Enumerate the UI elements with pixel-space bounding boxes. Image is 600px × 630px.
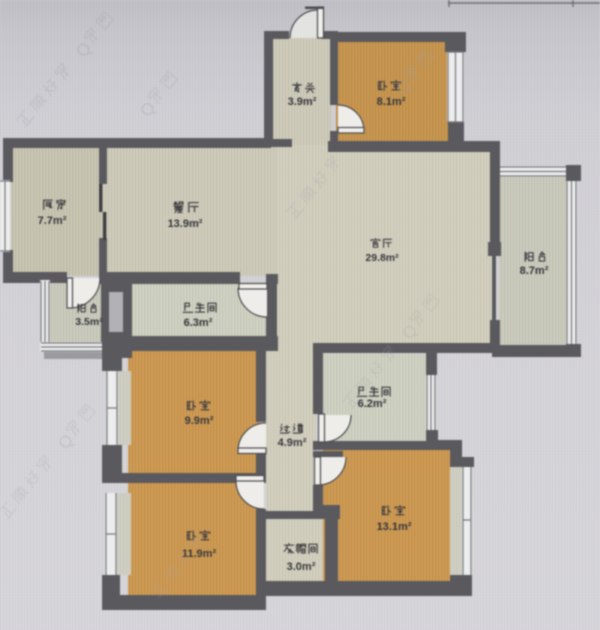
svg-text:29.8m²: 29.8m² xyxy=(365,252,399,264)
svg-text:9.9m²: 9.9m² xyxy=(185,415,214,427)
svg-text:6.3m²: 6.3m² xyxy=(184,317,213,329)
svg-text:13.1m²: 13.1m² xyxy=(377,521,412,533)
svg-text:13.9m²: 13.9m² xyxy=(168,218,203,230)
svg-text:7.7m²: 7.7m² xyxy=(38,215,67,227)
svg-text:3.9m²: 3.9m² xyxy=(288,96,317,108)
svg-text:8.1m²: 8.1m² xyxy=(377,96,406,108)
svg-text:3.0m²: 3.0m² xyxy=(287,561,316,573)
svg-text:3.5m²: 3.5m² xyxy=(75,316,103,328)
svg-text:6.2m²: 6.2m² xyxy=(358,398,387,410)
svg-text:8.7m²: 8.7m² xyxy=(520,265,549,277)
svg-text:4.9m²: 4.9m² xyxy=(278,437,307,449)
